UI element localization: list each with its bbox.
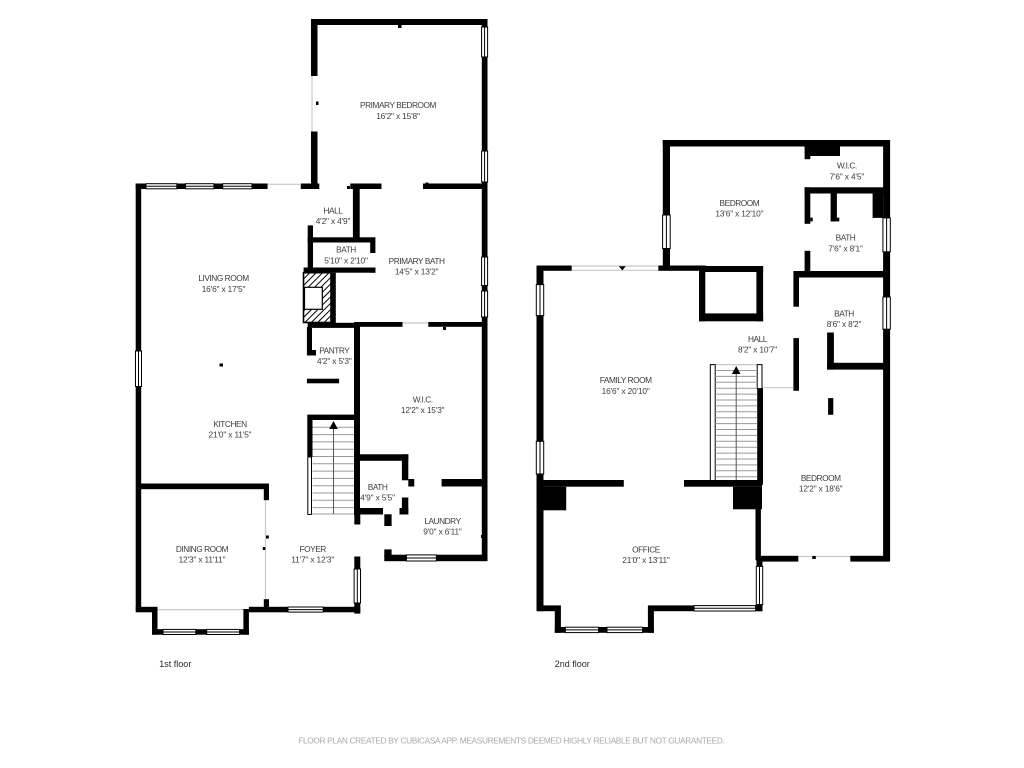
svg-text:5'10" x 2'10": 5'10" x 2'10"	[324, 255, 368, 265]
svg-text:12'2" x 15'3": 12'2" x 15'3"	[401, 405, 445, 415]
svg-text:PRIMARY BEDROOM: PRIMARY BEDROOM	[360, 100, 436, 110]
svg-text:16'6" x 17'5": 16'6" x 17'5"	[202, 284, 246, 294]
svg-text:KITCHEN: KITCHEN	[213, 419, 247, 429]
svg-text:PRIMARY BATH: PRIMARY BATH	[389, 256, 445, 266]
svg-text:1st floor: 1st floor	[159, 659, 191, 669]
svg-text:9'0" x 6'11": 9'0" x 6'11"	[423, 527, 462, 537]
svg-text:BATH: BATH	[834, 308, 854, 318]
svg-text:7'6" x 8'1": 7'6" x 8'1"	[828, 243, 863, 253]
svg-text:21'0" x 13'11": 21'0" x 13'11"	[622, 555, 670, 565]
svg-text:W.I.C.: W.I.C.	[413, 395, 433, 405]
svg-text:FAMILY ROOM: FAMILY ROOM	[600, 375, 652, 385]
svg-text:21'0" x 11'5": 21'0" x 11'5"	[209, 430, 252, 440]
svg-text:FLOOR PLAN CREATED BY CUBICASA: FLOOR PLAN CREATED BY CUBICASA APP. MEAS…	[298, 736, 724, 746]
svg-text:12'3" x 11'11": 12'3" x 11'11"	[179, 555, 226, 565]
svg-text:11'7" x 12'3": 11'7" x 12'3"	[291, 555, 334, 565]
svg-text:BATH: BATH	[836, 233, 856, 243]
svg-text:BEDROOM: BEDROOM	[720, 198, 760, 208]
svg-text:4'9" x 5'5": 4'9" x 5'5"	[360, 493, 395, 503]
svg-text:13'6" x 12'10": 13'6" x 12'10"	[715, 209, 763, 219]
svg-text:16'6" x 20'10": 16'6" x 20'10"	[602, 386, 650, 396]
svg-text:LIVING ROOM: LIVING ROOM	[198, 273, 249, 283]
svg-text:LAUNDRY: LAUNDRY	[424, 516, 461, 526]
svg-text:4'2" x 4'9": 4'2" x 4'9"	[316, 216, 351, 226]
svg-text:7'6" x 4'5": 7'6" x 4'5"	[829, 171, 864, 181]
svg-text:FOYER: FOYER	[300, 544, 327, 554]
svg-text:14'5" x 13'2": 14'5" x 13'2"	[395, 267, 439, 277]
svg-text:16'2" x 15'8": 16'2" x 15'8"	[376, 111, 420, 121]
svg-text:BATH: BATH	[336, 245, 356, 255]
svg-text:4'2" x 5'3": 4'2" x 5'3"	[317, 356, 352, 366]
svg-text:BATH: BATH	[368, 482, 388, 492]
svg-text:HALL: HALL	[324, 206, 344, 216]
svg-text:8'2" x 10'7": 8'2" x 10'7"	[738, 345, 777, 355]
svg-text:HALL: HALL	[748, 334, 768, 344]
svg-text:W.I.C.: W.I.C.	[837, 161, 857, 171]
svg-text:PANTRY: PANTRY	[319, 345, 350, 355]
svg-text:12'2" x 18'6": 12'2" x 18'6"	[799, 484, 843, 494]
svg-text:DINING ROOM: DINING ROOM	[176, 544, 229, 554]
svg-text:BEDROOM: BEDROOM	[801, 473, 841, 483]
svg-text:2nd floor: 2nd floor	[555, 659, 590, 669]
svg-text:8'6" x 8'2": 8'6" x 8'2"	[827, 319, 862, 329]
svg-text:OFFICE: OFFICE	[632, 545, 661, 555]
